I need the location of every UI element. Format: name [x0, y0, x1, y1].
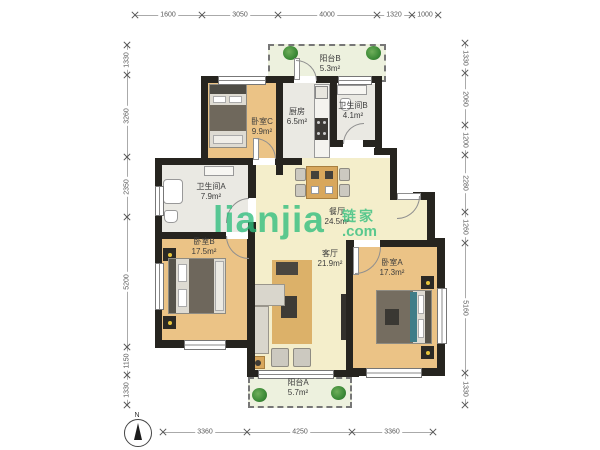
plant — [366, 46, 381, 60]
dining-chair — [339, 168, 350, 181]
room-area: 9.9m² — [251, 127, 273, 137]
room-name: 卧室C — [251, 117, 273, 127]
dim-tick — [159, 428, 168, 437]
dim-tick — [123, 213, 132, 222]
wall — [390, 148, 397, 200]
pillow — [178, 289, 187, 307]
watermark-brand: lianjia — [213, 202, 325, 238]
dim-label: 1330 — [462, 48, 469, 68]
dim-tick — [123, 153, 132, 162]
speaker — [163, 316, 176, 329]
dining-chair — [295, 168, 306, 181]
dim-tick — [348, 428, 357, 437]
dim-label: 2350 — [124, 177, 131, 197]
pillow — [418, 319, 424, 338]
pillow — [229, 96, 242, 103]
speaker — [421, 276, 434, 289]
dim-label: 1330 — [124, 380, 131, 400]
dim-label: 1000 — [415, 12, 435, 19]
compass-icon — [124, 419, 152, 447]
dim-tick — [461, 369, 470, 378]
room-area: 6.5m² — [287, 117, 307, 127]
dim-label: 5200 — [124, 272, 131, 292]
dim-label: 1260 — [462, 217, 469, 237]
label-bedroom-b: 卧室B 17.5m² — [192, 237, 217, 257]
wall — [330, 80, 337, 147]
speaker — [421, 346, 434, 359]
dining-table — [306, 166, 338, 199]
dim-label: 2280 — [462, 173, 469, 193]
bench — [213, 135, 243, 144]
room-area: 5.7m² — [287, 388, 308, 398]
pillow — [213, 96, 226, 103]
dim-tick — [123, 343, 132, 352]
armchair — [293, 348, 311, 367]
dim-tick — [131, 11, 140, 20]
room-name: 卫生间A — [196, 182, 225, 192]
room-area: 17.5m² — [192, 247, 217, 257]
bed-b — [168, 258, 226, 314]
dining-chair — [295, 184, 306, 197]
blanket — [210, 105, 246, 131]
window — [184, 340, 226, 350]
room-name: 阳台A — [287, 378, 308, 388]
window — [155, 186, 164, 216]
dim-label: 3050 — [230, 12, 250, 19]
dim-tick — [198, 11, 207, 20]
bed-accessory — [385, 309, 399, 325]
dim-tick — [243, 428, 252, 437]
dim-label: 1150 — [124, 351, 131, 370]
dim-tick — [434, 11, 443, 20]
window — [366, 368, 422, 378]
room-area: 5.3m² — [319, 64, 340, 74]
room-name: 卧室A — [380, 258, 405, 268]
bed-a — [376, 290, 432, 344]
label-bedroom-a: 卧室A 17.3m² — [380, 258, 405, 278]
wall — [346, 240, 353, 372]
dim-label: 1330 — [124, 50, 131, 70]
bath-a-sink — [204, 166, 234, 176]
label-bedroom-c: 卧室C 9.9m² — [251, 117, 273, 137]
room-area: 17.3m² — [380, 268, 405, 278]
dim-label: 1320 — [384, 12, 404, 19]
dim-tick — [461, 401, 470, 410]
label-living: 客厅 21.9m² — [318, 249, 343, 269]
door-bedroom-a — [354, 240, 380, 247]
bed-c — [209, 84, 247, 148]
dim-tick — [429, 428, 438, 437]
dim-label: 1200 — [462, 130, 469, 150]
plant — [331, 386, 346, 400]
watermark-tld: .com — [342, 224, 377, 239]
window — [155, 263, 164, 310]
dim-tick — [461, 39, 470, 48]
dim-tick — [461, 208, 470, 217]
pillow — [178, 264, 187, 282]
blanket — [189, 259, 214, 313]
footboard — [215, 261, 224, 311]
compass-needle — [134, 423, 142, 440]
dim-tick — [123, 41, 132, 50]
window — [437, 288, 447, 344]
dim-label: 5160 — [462, 298, 469, 318]
room-name: 卫生间B — [338, 101, 367, 111]
dim-tick — [461, 121, 470, 130]
floorplan-canvas: 阳台B 5.3m² 卧室C 9.9m² 厨房 6.5m² 卫生间B 4.1m² … — [0, 0, 600, 450]
dim-tick — [461, 239, 470, 248]
toilet — [164, 210, 178, 223]
stove — [315, 118, 328, 140]
dim-tick — [123, 71, 132, 80]
throw — [410, 292, 417, 342]
dim-tick — [123, 401, 132, 410]
plant — [252, 388, 267, 402]
desk — [276, 262, 298, 275]
armchair — [271, 348, 289, 367]
dim-label: 4000 — [317, 12, 337, 19]
label-balcony-a: 阳台A 5.7m² — [287, 378, 308, 398]
wall — [201, 76, 208, 165]
bath-b-counter — [337, 85, 367, 95]
window — [338, 76, 372, 85]
room-name: 客厅 — [318, 249, 343, 259]
dining-chair — [339, 184, 350, 197]
dim-label: 3360 — [195, 429, 215, 436]
dim-label: 3360 — [382, 429, 402, 436]
dim-label: 1600 — [158, 12, 178, 19]
headboard — [425, 291, 431, 343]
room-area: 21.9m² — [318, 259, 343, 269]
window — [218, 76, 266, 85]
dim-label: 1330 — [462, 379, 469, 399]
room-name: 厨房 — [287, 107, 307, 117]
headboard — [169, 259, 176, 313]
room-area: 4.1m² — [338, 111, 367, 121]
pillow — [418, 295, 424, 314]
dim-label: 3260 — [124, 106, 131, 126]
label-kitchen: 厨房 6.5m² — [287, 107, 307, 127]
label-balcony-b: 阳台B 5.3m² — [319, 54, 340, 74]
dim-tick — [461, 151, 470, 160]
label-bath-b: 卫生间B 4.1m² — [338, 101, 367, 121]
dim-tick — [373, 11, 382, 20]
compass-north-label: N — [134, 412, 139, 419]
watermark-cjk: 链家 — [342, 209, 376, 223]
dim-tick — [461, 69, 470, 78]
bathtub — [163, 179, 183, 204]
room-name: 阳台B — [319, 54, 340, 64]
dim-label: 4250 — [290, 429, 310, 436]
dim-tick — [123, 371, 132, 380]
dim-tick — [274, 11, 283, 20]
headboard — [210, 85, 246, 94]
dim-label: 2060 — [462, 89, 469, 109]
fridge — [315, 86, 328, 99]
wall — [276, 76, 283, 175]
